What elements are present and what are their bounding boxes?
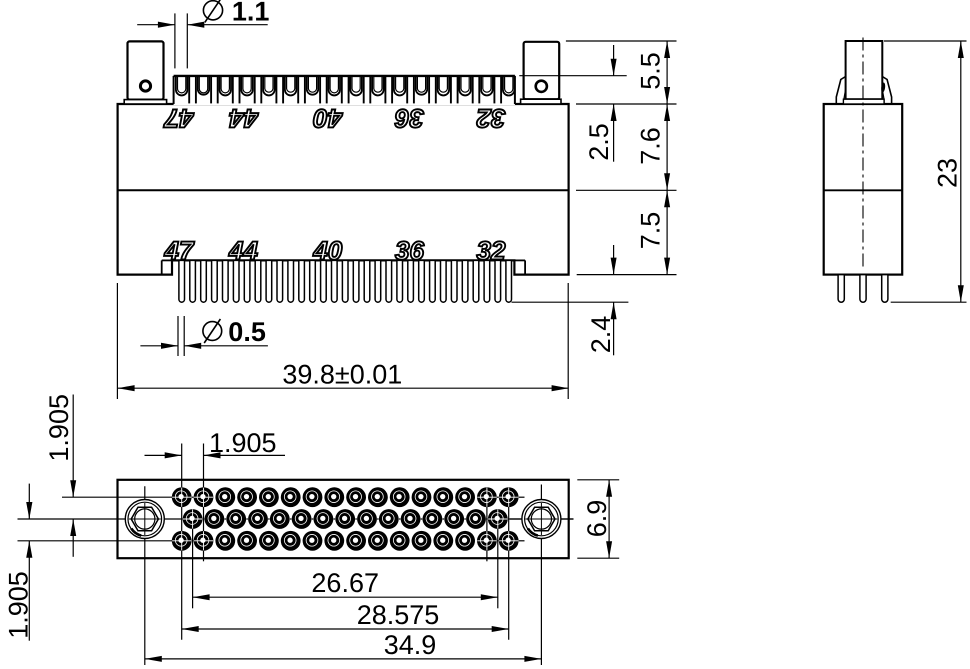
svg-text:23: 23	[933, 158, 963, 188]
svg-text:39.8±0.01: 39.8±0.01	[282, 360, 402, 390]
svg-text:1.905: 1.905	[44, 394, 74, 462]
svg-text:28.575: 28.575	[357, 600, 440, 630]
svg-text:1.1: 1.1	[232, 0, 270, 27]
svg-text:36: 36	[395, 104, 424, 134]
svg-text:5.5: 5.5	[636, 52, 666, 90]
svg-text:7.5: 7.5	[636, 212, 666, 250]
svg-text:40: 40	[312, 235, 342, 265]
svg-text:40: 40	[313, 104, 343, 134]
svg-text:2.4: 2.4	[586, 316, 616, 354]
svg-text:36: 36	[395, 235, 424, 265]
svg-text:2.5: 2.5	[584, 123, 614, 161]
svg-text:0.5: 0.5	[228, 317, 266, 347]
svg-text:47: 47	[163, 104, 194, 134]
svg-text:6.9: 6.9	[582, 500, 612, 538]
svg-text:1.905: 1.905	[209, 428, 277, 458]
svg-text:1.905: 1.905	[4, 571, 34, 639]
svg-text:44: 44	[228, 235, 258, 265]
svg-text:7.6: 7.6	[636, 127, 666, 165]
svg-text:32: 32	[477, 235, 506, 265]
svg-text:47: 47	[164, 235, 195, 265]
svg-text:34.9: 34.9	[384, 630, 437, 660]
svg-text:32: 32	[476, 104, 505, 134]
svg-text:44: 44	[229, 104, 259, 134]
svg-text:26.67: 26.67	[311, 568, 379, 598]
